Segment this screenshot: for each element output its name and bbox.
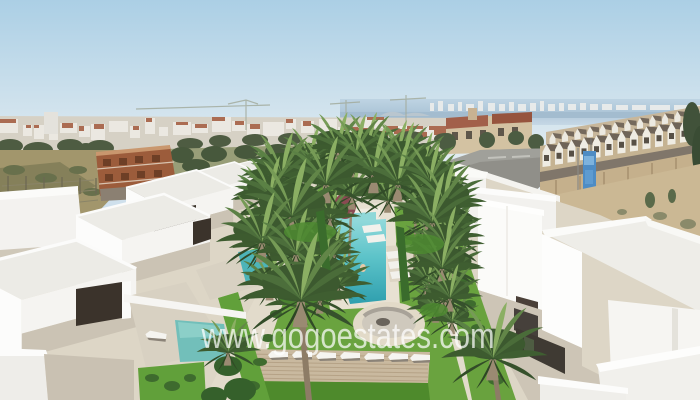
svg-text:www.gogoestates.com: www.gogoestates.com	[201, 315, 495, 356]
